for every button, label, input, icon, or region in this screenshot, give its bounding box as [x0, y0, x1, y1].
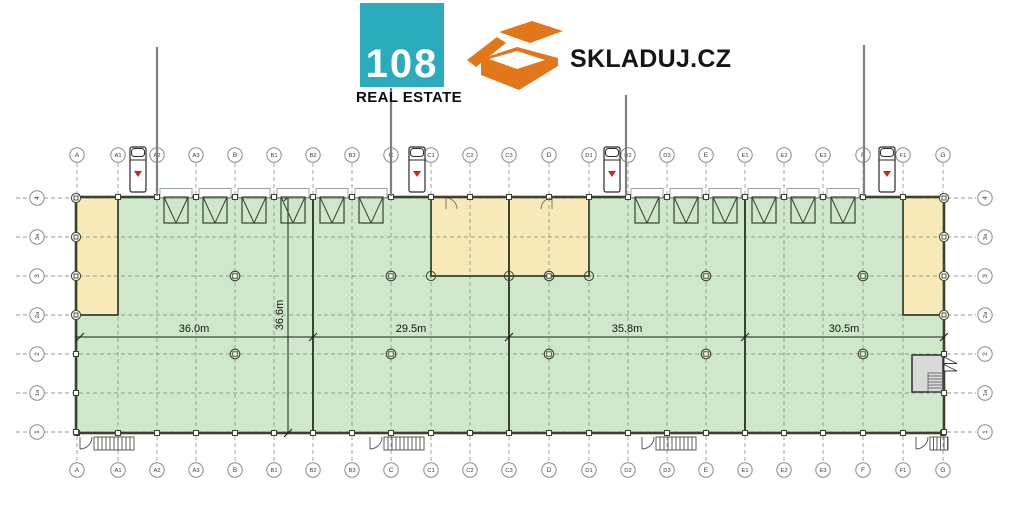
- axis-label-right-1a: 1a: [983, 389, 989, 396]
- dock-shelter: [238, 189, 270, 198]
- axis-label-bottom-A: A: [75, 467, 80, 474]
- axis-label-top-A: A: [75, 152, 80, 159]
- column-marker-core: [861, 274, 865, 278]
- column-marker-core: [547, 352, 551, 356]
- wall-tick: [350, 431, 355, 436]
- axis-label-top-B2: B2: [309, 153, 316, 159]
- wall-tick: [429, 195, 434, 200]
- wall-tick: [74, 352, 79, 357]
- axis-label-bottom-F1: F1: [900, 468, 907, 474]
- tech-room-door-leaf-1: [944, 357, 957, 364]
- wall-tick: [665, 195, 670, 200]
- column-marker-core: [942, 274, 946, 278]
- column-marker-core: [74, 196, 78, 200]
- axis-label-bottom-A3: A3: [192, 468, 199, 474]
- axis-label-left-2a: 2a: [35, 311, 41, 318]
- wall-tick: [782, 195, 787, 200]
- dock-shelter: [709, 189, 741, 198]
- axis-label-bottom-D2: D2: [624, 468, 631, 474]
- wall-tick: [782, 431, 787, 436]
- wall-tick: [429, 431, 434, 436]
- axis-label-bottom-F: F: [861, 467, 865, 474]
- entrance-stair-outline: [930, 437, 948, 450]
- axis-label-top-G: G: [940, 152, 945, 159]
- column-marker-core: [547, 274, 551, 278]
- dock-shelter: [827, 189, 859, 198]
- axis-label-bottom-C1: C1: [427, 468, 434, 474]
- axis-label-right-4: 4: [982, 196, 989, 200]
- wall-tick: [901, 195, 906, 200]
- entrance-stairs: [370, 437, 424, 450]
- wall-tick: [587, 431, 592, 436]
- skladuj-logo-text: SKLADUJ.CZ: [570, 45, 731, 74]
- wall-tick: [821, 195, 826, 200]
- wall-tick: [665, 431, 670, 436]
- column-marker-core: [942, 313, 946, 317]
- entrance-door-swing: [80, 437, 92, 449]
- axis-label-top-E1: E1: [741, 153, 748, 159]
- axis-label-right-2a: 2a: [983, 311, 989, 318]
- axis-label-top-B1: B1: [270, 153, 277, 159]
- column-marker-core: [704, 274, 708, 278]
- wall-tick: [74, 391, 79, 396]
- wall-tick: [155, 431, 160, 436]
- wall-tick: [507, 195, 512, 200]
- axis-label-top-A3: A3: [192, 153, 199, 159]
- truck: [409, 147, 425, 192]
- axis-label-bottom-E3: E3: [819, 468, 826, 474]
- wall-tick: [311, 195, 316, 200]
- entrance-door-swing: [370, 437, 382, 449]
- tech-room: [912, 355, 957, 392]
- truck-cab: [132, 149, 145, 157]
- wall-tick: [861, 431, 866, 436]
- wall-tick: [272, 195, 277, 200]
- axis-label-bottom-A2: A2: [153, 468, 160, 474]
- logo-108-number: 108: [366, 44, 439, 87]
- dim-label-36.0m: 36.0m: [179, 323, 210, 335]
- axis-label-bottom-C: C: [389, 467, 394, 474]
- column-marker-core: [233, 274, 237, 278]
- wall-tick: [116, 195, 121, 200]
- truck: [130, 147, 146, 192]
- wall-tick: [587, 195, 592, 200]
- wall-tick: [194, 195, 199, 200]
- axis-label-bottom-C3: C3: [505, 468, 512, 474]
- dock-shelter: [316, 189, 348, 198]
- logo-108-subtitle: REAL ESTATE: [356, 89, 448, 106]
- truck: [879, 147, 895, 192]
- axis-label-bottom-D1: D1: [585, 468, 592, 474]
- axis-label-top-C3: C3: [505, 153, 512, 159]
- column-marker-core: [942, 196, 946, 200]
- column-marker-core: [861, 352, 865, 356]
- office-area-right: [903, 197, 944, 315]
- axis-label-top-C2: C2: [466, 153, 473, 159]
- wall-tick: [468, 195, 473, 200]
- entrance-door-swing: [916, 437, 928, 449]
- wall-tick: [350, 195, 355, 200]
- axis-label-bottom-D: D: [547, 467, 552, 474]
- axis-label-top-A1: A1: [114, 153, 121, 159]
- wall-tick: [233, 431, 238, 436]
- entrance-stairs: [642, 437, 696, 450]
- wall-tick: [942, 352, 947, 357]
- column-marker-core: [389, 352, 393, 356]
- axis-label-bottom-B2: B2: [309, 468, 316, 474]
- column-marker-core: [942, 235, 946, 239]
- truck-cab: [606, 149, 619, 157]
- axis-label-top-F1: F1: [900, 153, 907, 159]
- wall-tick: [468, 431, 473, 436]
- axis-label-top-E3: E3: [819, 153, 826, 159]
- entrance-stairs: [80, 437, 134, 450]
- axis-label-bottom-G: G: [940, 467, 945, 474]
- axis-label-left-3: 3: [34, 274, 41, 278]
- axis-label-bottom-E2: E2: [780, 468, 787, 474]
- floor-plan-page: AAA1A1A2A2A3A3BBB1B1B2B2B3B3CCC1C1C2C2C3…: [0, 0, 1024, 515]
- logo-108: 108: [360, 3, 444, 87]
- dock-shelter: [355, 189, 387, 198]
- axis-label-bottom-B3: B3: [348, 468, 355, 474]
- entrance-stairs-group: [80, 437, 948, 450]
- dock-shelter: [160, 189, 192, 198]
- dock-shelter: [277, 189, 309, 198]
- column-marker-core: [704, 352, 708, 356]
- column-marker-core: [74, 274, 78, 278]
- tech-room-outline: [912, 355, 943, 392]
- skladuj-box-icon: [466, 20, 564, 92]
- axis-label-right-1: 1: [982, 430, 989, 434]
- axis-label-right-2: 2: [982, 352, 989, 356]
- axis-label-top-D: D: [547, 152, 552, 159]
- column-marker-core: [74, 313, 78, 317]
- axis-label-left-3a: 3a: [35, 233, 41, 240]
- truck: [604, 147, 620, 192]
- axis-label-left-4: 4: [34, 196, 41, 200]
- wall-tick: [704, 431, 709, 436]
- wall-tick: [743, 195, 748, 200]
- dim-label-29.5m: 29.5m: [396, 323, 427, 335]
- column-marker-core: [74, 235, 78, 239]
- wall-tick: [507, 431, 512, 436]
- dim-label-30.5m: 30.5m: [829, 323, 860, 335]
- dim-label-35.8m: 35.8m: [612, 323, 643, 335]
- wall-tick: [389, 431, 394, 436]
- entrance-door-swing: [642, 437, 654, 449]
- axis-label-bottom-B1: B1: [270, 468, 277, 474]
- wall-tick: [942, 430, 947, 435]
- wall-tick: [272, 431, 277, 436]
- axis-label-top-E: E: [704, 152, 709, 159]
- axis-label-top-C1: C1: [427, 153, 434, 159]
- axis-label-left-1a: 1a: [35, 389, 41, 396]
- wall-tick: [233, 195, 238, 200]
- axis-label-top-B3: B3: [348, 153, 355, 159]
- office-area-left: [76, 197, 118, 315]
- wall-tick: [942, 391, 947, 396]
- dim-label-vertical: 36.6m: [274, 300, 286, 331]
- tech-room-door-leaf-2: [944, 365, 957, 372]
- axis-label-top-B: B: [233, 152, 238, 159]
- column-marker-core: [233, 352, 237, 356]
- wall-tick: [743, 431, 748, 436]
- axis-label-bottom-B: B: [233, 467, 238, 474]
- axis-label-top-D1: D1: [585, 153, 592, 159]
- dock-shelter: [199, 189, 231, 198]
- axis-label-bottom-E1: E1: [741, 468, 748, 474]
- axis-label-bottom-C2: C2: [466, 468, 473, 474]
- axis-label-left-2: 2: [34, 352, 41, 356]
- axis-label-top-D3: D3: [663, 153, 670, 159]
- dock-shelter: [631, 189, 663, 198]
- column-marker-core: [389, 274, 393, 278]
- dock-shelter: [748, 189, 780, 198]
- dock-shelter: [787, 189, 819, 198]
- truck-cab: [881, 149, 894, 157]
- wall-tick: [116, 431, 121, 436]
- truck-cab: [411, 149, 424, 157]
- wall-tick: [704, 195, 709, 200]
- wall-tick: [821, 431, 826, 436]
- wall-tick: [901, 431, 906, 436]
- dock-shelter: [670, 189, 702, 198]
- axis-label-right-3a: 3a: [983, 233, 989, 240]
- wall-tick: [311, 431, 316, 436]
- axis-label-right-3: 3: [982, 274, 989, 278]
- axis-label-bottom-A1: A1: [114, 468, 121, 474]
- axis-label-left-1: 1: [34, 430, 41, 434]
- wall-tick: [194, 431, 199, 436]
- axis-label-bottom-E: E: [704, 467, 709, 474]
- wall-tick: [547, 431, 552, 436]
- axis-label-top-E2: E2: [780, 153, 787, 159]
- axis-label-bottom-D3: D3: [663, 468, 670, 474]
- wall-tick: [74, 430, 79, 435]
- wall-tick: [626, 431, 631, 436]
